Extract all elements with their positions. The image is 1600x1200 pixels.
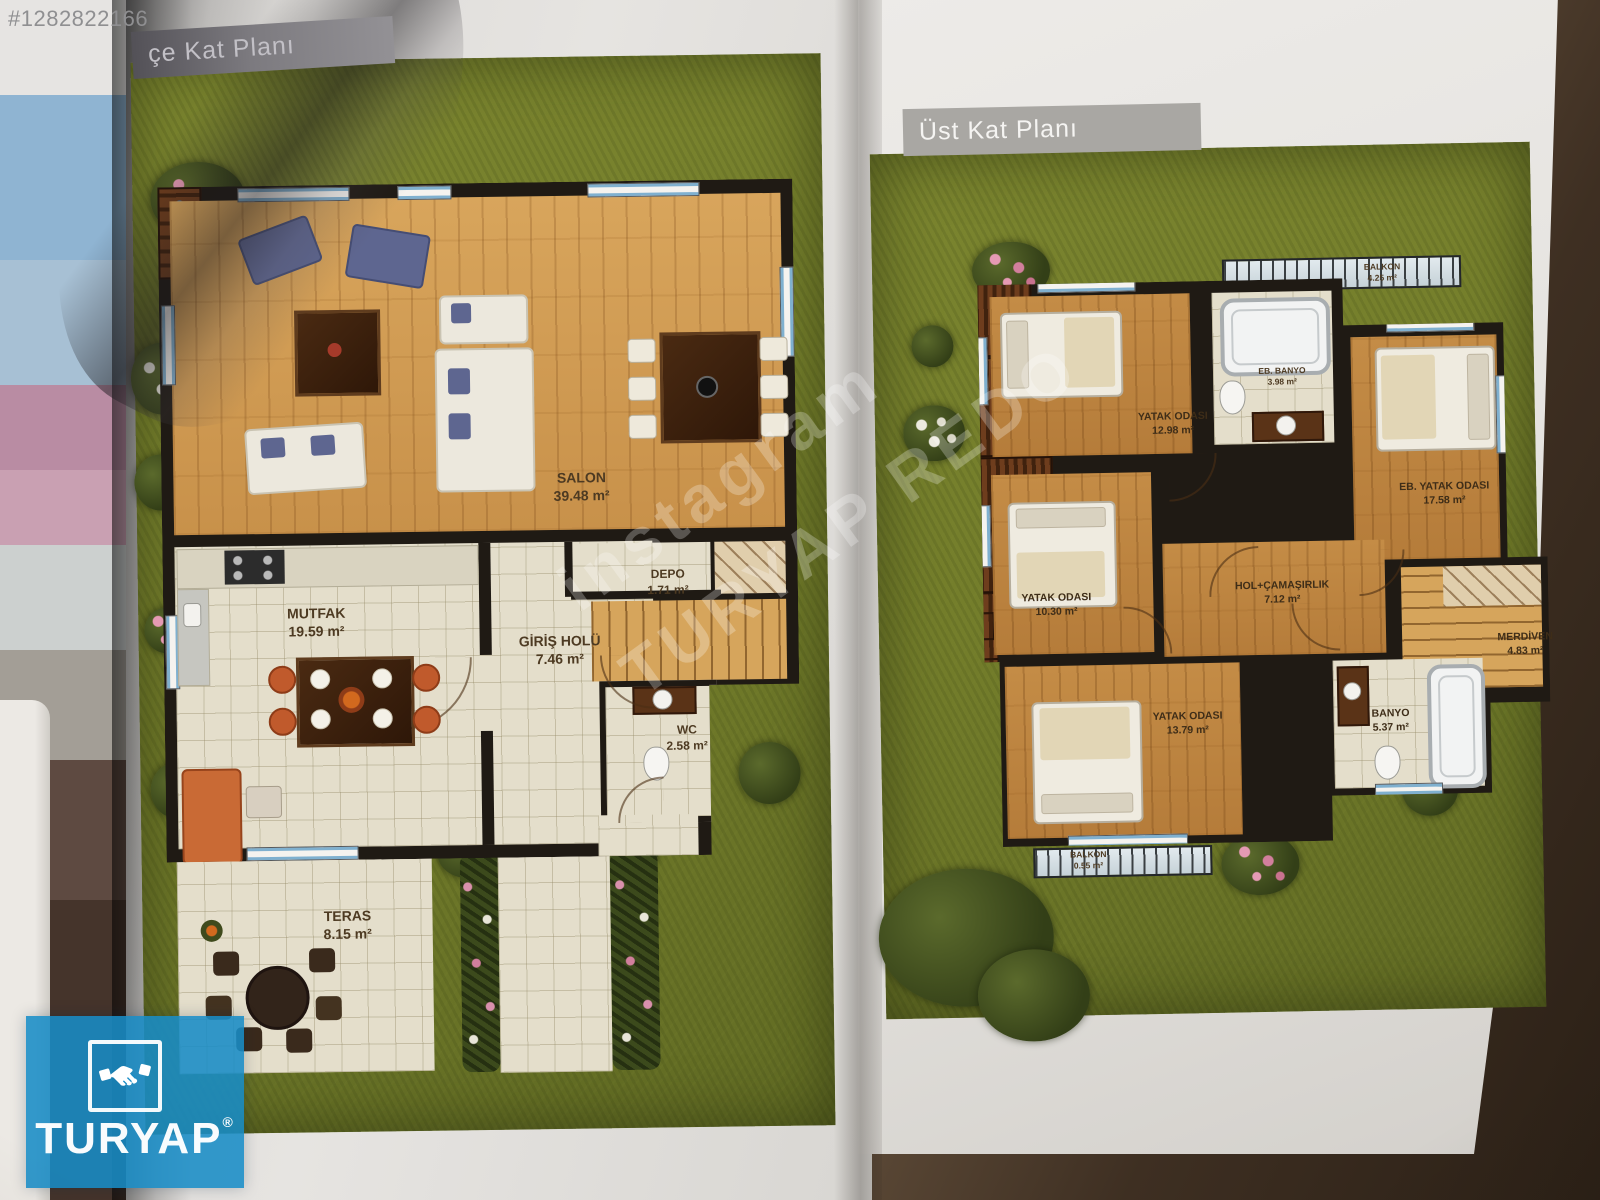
door-swing xyxy=(1358,549,1405,596)
plate xyxy=(373,708,393,728)
room-label-giris-holu: GİRİŞ HOLÜ 7.46 m² xyxy=(519,631,601,669)
room-name: BANYO xyxy=(1371,706,1409,721)
room-area: 8.15 m² xyxy=(323,925,371,944)
room-name: WC xyxy=(666,722,708,738)
terrace-chair xyxy=(316,996,342,1020)
orange-sofa xyxy=(181,768,242,865)
turyap-wordmark: TURYAP® xyxy=(26,1114,244,1164)
ground-floor-title: çe Kat Planı xyxy=(147,31,295,68)
bush xyxy=(738,742,801,805)
upper-floor-title: Üst Kat Planı xyxy=(919,114,1078,145)
blanket xyxy=(1064,317,1115,388)
room-name: YATAK ODASI xyxy=(1153,709,1223,725)
upper-floor-plan: BALKON 4.25 m² YATAK ODASI 12.98 m² EB. … xyxy=(870,142,1546,1020)
upper-floor-banner: Üst Kat Planı xyxy=(903,103,1202,156)
wall xyxy=(478,543,492,655)
nightstand xyxy=(974,613,994,639)
room-area: 7.12 m² xyxy=(1235,592,1329,608)
plate xyxy=(311,709,331,729)
pillow xyxy=(1016,507,1106,529)
cushion xyxy=(310,434,335,456)
room-label-banyo: BANYO 5.37 m² xyxy=(1371,706,1409,735)
room-name: GİRİŞ HOLÜ xyxy=(519,631,601,650)
room-area: 3.98 m² xyxy=(1258,376,1305,388)
room-name: BALKON xyxy=(1070,849,1107,861)
room-area: 7.46 m² xyxy=(519,649,601,668)
room-name: MUTFAK xyxy=(287,604,346,623)
stair-winders xyxy=(714,541,786,594)
balcony-bottom xyxy=(1033,845,1213,878)
bush xyxy=(911,325,954,368)
registered-mark: ® xyxy=(222,1114,234,1130)
room-area: 0.55 m² xyxy=(1070,860,1107,872)
room-area: 2.58 m² xyxy=(666,738,708,754)
window xyxy=(1495,375,1509,453)
room-area: 4.25 m² xyxy=(1364,272,1401,284)
room-label-yatak-3: YATAK ODASI 13.79 m² xyxy=(1153,709,1223,739)
window xyxy=(978,505,992,567)
room-label-balkon-top: BALKON 4.25 m² xyxy=(1364,261,1401,284)
dining-chair xyxy=(628,377,656,401)
room-label-balkon-bottom: BALKON 0.55 m² xyxy=(1070,849,1107,872)
room-area: 39.48 m² xyxy=(553,486,609,505)
room-name: DEPO xyxy=(647,567,689,583)
room-label-yatak-1: YATAK ODASI 12.98 m² xyxy=(1138,409,1208,439)
sink xyxy=(183,603,201,627)
terrace-chair xyxy=(286,1028,312,1052)
room-name: HOL+ÇAMAŞIRLIK xyxy=(1235,578,1329,594)
magazine-photo: SALON 39.48 m² MUTFAK 19.59 m² DEPO 1.71… xyxy=(0,0,1600,1200)
bathtub xyxy=(1427,664,1487,789)
room-name: TERAS xyxy=(323,906,371,925)
brand-name: TURYAP xyxy=(35,1114,222,1163)
hedge-row xyxy=(460,854,501,1073)
dining-chair xyxy=(629,415,657,439)
room-area: 19.59 m² xyxy=(287,622,346,641)
pillow xyxy=(1041,792,1133,814)
garden-path xyxy=(498,851,613,1073)
room-name: EB. YATAK ODASI xyxy=(1399,478,1489,494)
dining-chair xyxy=(759,337,787,361)
window xyxy=(1037,278,1135,293)
room-label-wc: WC 2.58 m² xyxy=(666,722,708,754)
room-name: BALKON xyxy=(1364,261,1401,273)
turyap-logo: TURYAP® xyxy=(26,1016,244,1188)
plate xyxy=(372,668,392,688)
room-label-depo: DEPO 1.71 m² xyxy=(647,567,689,599)
wall xyxy=(481,731,495,845)
pillow xyxy=(1006,320,1029,388)
blanket xyxy=(1381,355,1437,440)
room-area: 5.37 m² xyxy=(1372,720,1410,735)
loveseat xyxy=(244,422,367,496)
pillow xyxy=(1467,354,1491,440)
listing-id: #1282822166 xyxy=(8,6,148,32)
room-name: YATAK ODASI xyxy=(1021,590,1091,606)
room-name: EB. BANYO xyxy=(1258,365,1305,377)
room-label-eb-yatak: EB. YATAK ODASI 17.58 m² xyxy=(1399,478,1490,508)
room-area: 4.83 m² xyxy=(1498,643,1554,658)
ottoman xyxy=(246,786,282,818)
door-swing xyxy=(1169,453,1218,502)
cushion xyxy=(448,368,470,394)
kitchen-counter xyxy=(176,545,479,589)
dining-chair xyxy=(627,339,655,363)
room-label-yatak-2: YATAK ODASI 10.30 m² xyxy=(1021,590,1091,620)
cushion xyxy=(448,413,470,439)
flower-bush xyxy=(903,405,966,462)
room-area: 13.79 m² xyxy=(1153,723,1223,739)
blanket xyxy=(1039,707,1130,761)
room-label-hol-camasirlik: HOL+ÇAMAŞIRLIK 7.12 m² xyxy=(1235,578,1330,608)
room-area: 12.98 m² xyxy=(1138,423,1208,439)
room-label-mutfak: MUTFAK 19.59 m² xyxy=(287,604,346,641)
room-label-teras: TERAS 8.15 m² xyxy=(323,906,372,943)
nightstand xyxy=(974,659,998,679)
room-area: 10.30 m² xyxy=(1022,604,1092,620)
window xyxy=(587,182,699,198)
dining-chair xyxy=(760,375,788,399)
upper-floor-house xyxy=(967,247,1553,850)
cushion xyxy=(451,303,471,323)
stove xyxy=(224,550,284,585)
hedge-row xyxy=(610,852,661,1071)
window xyxy=(1386,318,1474,333)
room-name: SALON xyxy=(553,468,609,487)
room-depo xyxy=(570,542,711,594)
room-label-merdiven: MERDİVEN 4.83 m² xyxy=(1497,629,1553,658)
cushion xyxy=(260,437,285,459)
room-name: MERDİVEN xyxy=(1497,629,1553,644)
room-area: 17.58 m² xyxy=(1399,493,1489,509)
wall xyxy=(571,590,721,600)
dining-chair xyxy=(761,413,789,437)
terrace-chair xyxy=(213,951,239,975)
wall xyxy=(564,542,573,597)
window xyxy=(974,337,988,405)
room-label-salon: SALON 39.48 m² xyxy=(553,468,610,505)
handshake-icon xyxy=(88,1040,162,1112)
stair-winders xyxy=(1443,565,1542,607)
room-label-eb-banyo: EB. BANYO 3.98 m² xyxy=(1258,365,1306,388)
terrace-chair xyxy=(309,948,335,972)
room-name: YATAK ODASI xyxy=(1138,409,1208,425)
terrace-door xyxy=(247,846,359,862)
room-area: 1.71 m² xyxy=(647,582,689,598)
